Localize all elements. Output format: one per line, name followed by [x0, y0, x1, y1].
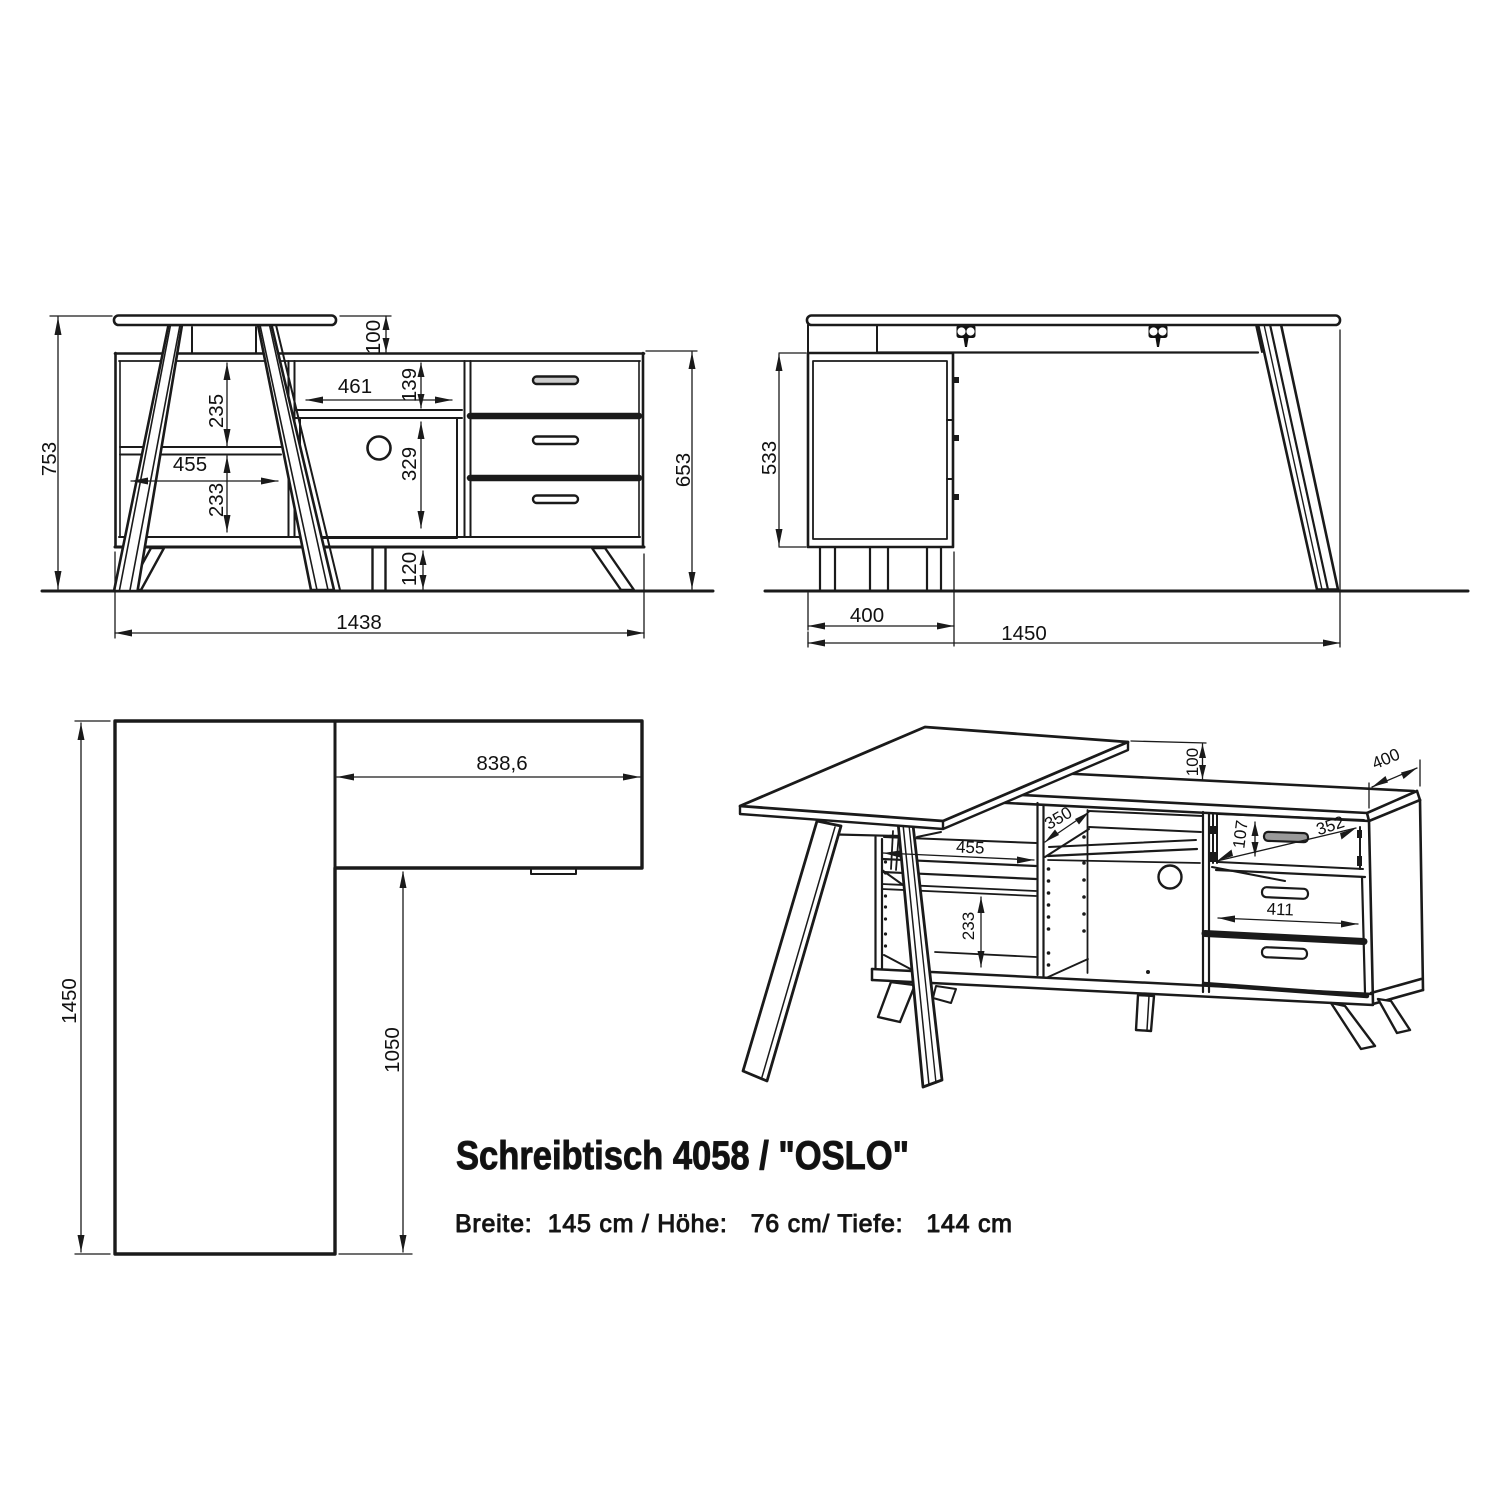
- svg-text:461: 461: [338, 375, 372, 398]
- svg-text:411: 411: [1266, 899, 1294, 919]
- svg-text:120: 120: [398, 552, 421, 586]
- svg-text:653: 653: [672, 453, 695, 487]
- svg-text:838,6: 838,6: [476, 752, 527, 775]
- svg-text:233: 233: [959, 912, 978, 940]
- svg-text:533: 533: [758, 441, 781, 475]
- svg-text:107: 107: [1229, 819, 1251, 849]
- svg-text:1050: 1050: [381, 1027, 404, 1073]
- svg-text:235: 235: [205, 394, 228, 428]
- svg-text:Schreibtisch 4058 / "OSLO": Schreibtisch 4058 / "OSLO": [456, 1134, 909, 1178]
- svg-text:233: 233: [205, 483, 228, 517]
- svg-text:100: 100: [1183, 748, 1202, 776]
- svg-text:400: 400: [850, 604, 884, 627]
- svg-text:1450: 1450: [58, 978, 81, 1024]
- svg-text:Breite: 145 cm / Höhe: 76 c: Breite: 145 cm / Höhe: 76 cm/ Tiefe: 144…: [455, 1210, 1012, 1238]
- svg-text:455: 455: [956, 837, 985, 857]
- svg-text:100: 100: [362, 320, 385, 354]
- svg-text:1438: 1438: [336, 611, 382, 634]
- svg-text:753: 753: [38, 442, 61, 476]
- svg-text:1450: 1450: [1001, 622, 1047, 645]
- svg-text:400: 400: [1369, 745, 1403, 774]
- svg-text:350: 350: [1041, 803, 1075, 834]
- svg-text:329: 329: [398, 447, 421, 481]
- svg-text:139: 139: [398, 368, 421, 402]
- svg-text:455: 455: [173, 453, 207, 476]
